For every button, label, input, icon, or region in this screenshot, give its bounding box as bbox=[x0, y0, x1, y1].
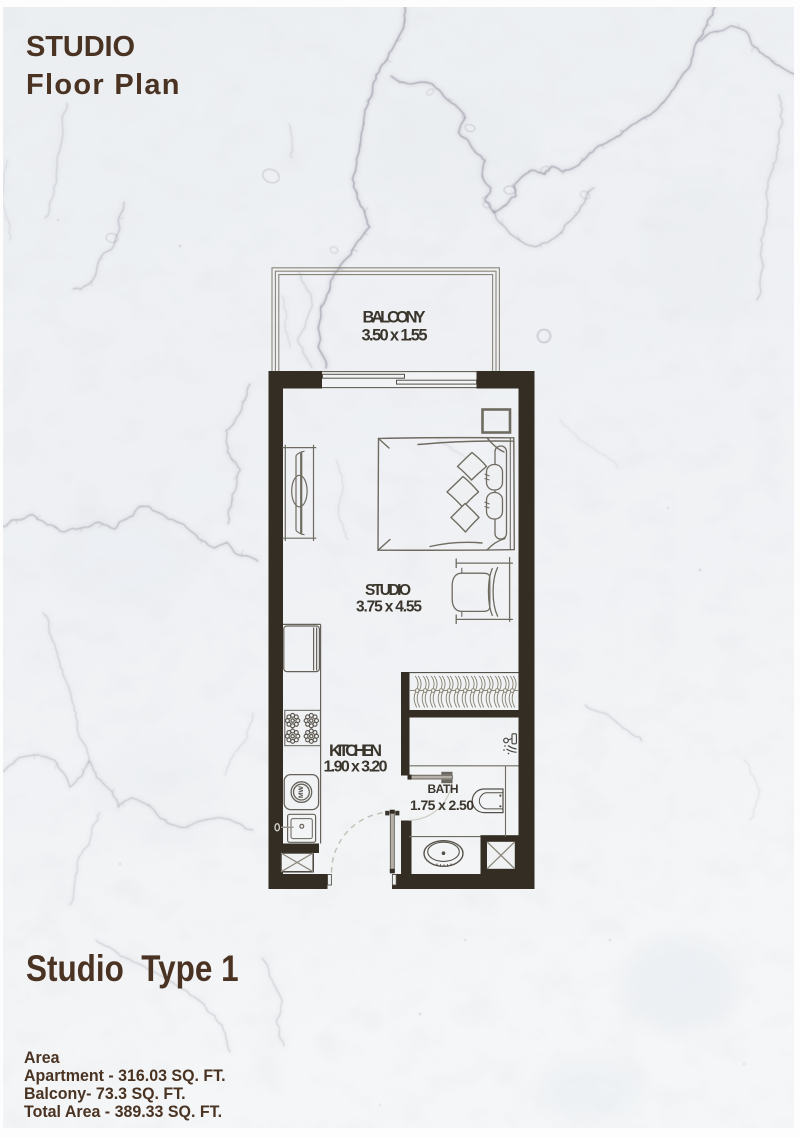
svg-text:3.50 x 1.55: 3.50 x 1.55 bbox=[362, 327, 428, 345]
svg-text:1.75 x 2.50: 1.75 x 2.50 bbox=[410, 797, 474, 813]
svg-text:BATH: BATH bbox=[428, 782, 459, 796]
svg-text:STUDIO: STUDIO bbox=[365, 582, 411, 599]
svg-text:1.90 x 3.20: 1.90 x 3.20 bbox=[324, 759, 388, 776]
svg-text:MW: MW bbox=[298, 785, 305, 798]
svg-text:KITCHEN: KITCHEN bbox=[329, 741, 382, 760]
svg-text:3.75 x 4.55: 3.75 x 4.55 bbox=[356, 599, 422, 616]
svg-text:BALCONY: BALCONY bbox=[363, 309, 426, 327]
